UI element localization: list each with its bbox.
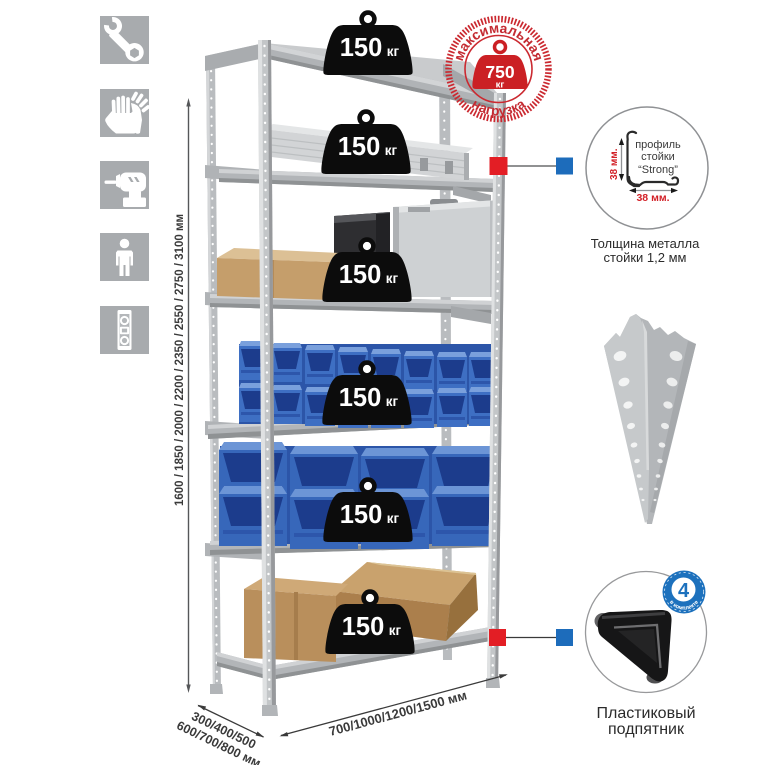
svg-text:“Strong”: “Strong” xyxy=(638,164,678,176)
svg-text:38 мм.: 38 мм. xyxy=(609,148,620,180)
svg-text:подпятник: подпятник xyxy=(608,721,685,738)
svg-text:700/1000/1200/1500 мм: 700/1000/1200/1500 мм xyxy=(327,687,468,739)
svg-text:стойки: стойки xyxy=(641,151,675,163)
svg-text:Пластиковый: Пластиковый xyxy=(596,705,695,722)
svg-text:штуки: штуки xyxy=(674,560,694,568)
svg-text:4: 4 xyxy=(678,580,690,602)
svg-text:стойки 1,2 мм: стойки 1,2 мм xyxy=(604,250,687,265)
svg-text:38 мм.: 38 мм. xyxy=(636,192,669,204)
svg-text:профиль: профиль xyxy=(635,139,681,151)
svg-text:1600 / 1850 / 2000 / 2200 / 23: 1600 / 1850 / 2000 / 2200 / 2350 / 2550 … xyxy=(174,214,186,506)
svg-text:Толщина металла: Толщина металла xyxy=(591,236,700,251)
svg-text:кг: кг xyxy=(496,80,505,91)
